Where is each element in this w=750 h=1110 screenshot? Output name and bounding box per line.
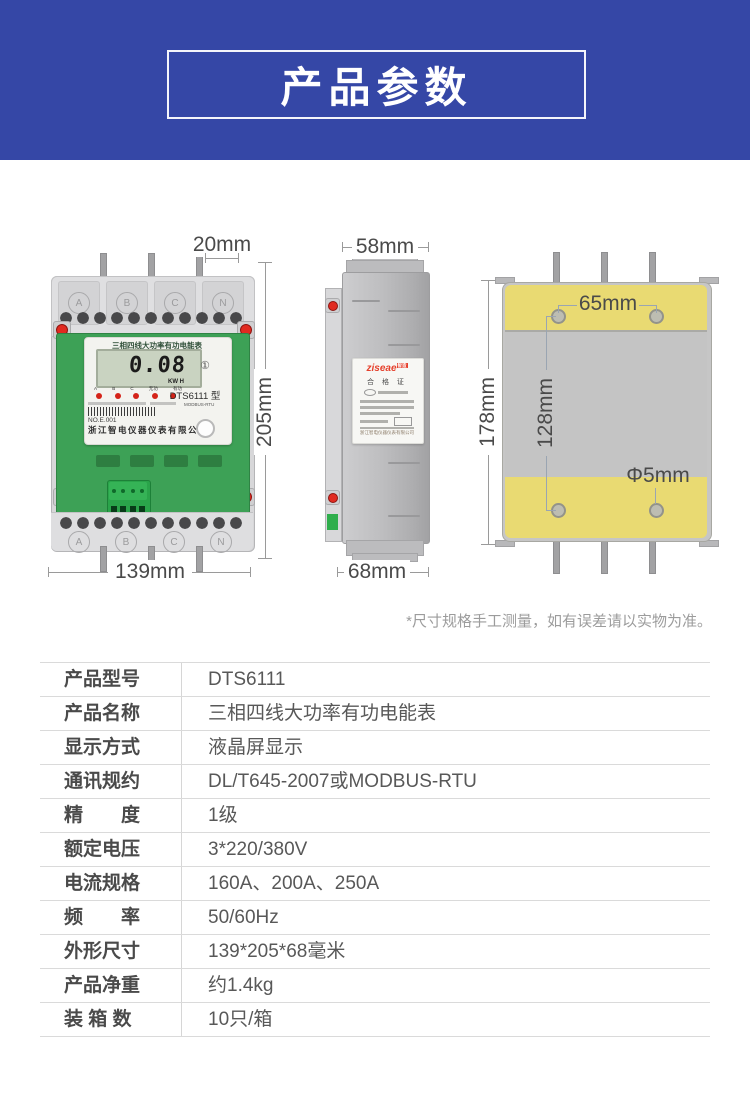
certificate-title: 合 格 证	[352, 377, 422, 387]
serial-number: NO.E.001	[88, 417, 117, 424]
dimension-label-178mm: 178mm	[477, 369, 499, 455]
dimension-label-205mm: 205mm	[254, 369, 276, 455]
terminal-block-screws	[109, 482, 147, 500]
spec-value: 3*220/380V	[181, 833, 710, 866]
spec-label: 电流规格	[40, 867, 181, 900]
pcb-slot	[130, 455, 154, 467]
model-number: DTS6111 型	[160, 388, 230, 402]
dimension-tick	[481, 280, 495, 281]
title-frame: 产品参数	[167, 50, 586, 119]
cert-text-line	[360, 420, 388, 423]
cert-stamp-icon	[364, 389, 376, 396]
dimension-tick	[342, 242, 343, 252]
spec-value: 50/60Hz	[181, 901, 710, 934]
pcb-slot	[198, 455, 222, 467]
cert-text-line	[378, 391, 408, 394]
dimension-label-58mm: 58mm	[352, 235, 418, 259]
spec-value: 160A、200A、250A	[181, 867, 710, 900]
table-row: 电流规格 160A、200A、250A	[40, 867, 710, 901]
dimension-tick	[238, 253, 239, 263]
led-indicator-icon	[152, 393, 158, 399]
header-banner: 产品参数	[0, 0, 750, 160]
table-row: 通讯规约 DL/T645-2007或MODBUS-RTU	[40, 765, 710, 799]
dimension-tick	[48, 567, 49, 577]
terminal-screws-row	[58, 312, 246, 325]
lcd-reading: 0.08	[128, 353, 187, 378]
led-indicator-icon	[133, 393, 139, 399]
dimension-label-65mm: 65mm	[577, 292, 639, 316]
spec-value: 1级	[181, 799, 710, 832]
lcd-unit: KW H	[168, 379, 184, 385]
spec-label: 通讯规约	[40, 765, 181, 798]
dimension-label-20mm: 20mm	[192, 233, 252, 257]
spec-value: 液晶屏显示	[181, 731, 710, 764]
table-row: 产品型号 DTS6111	[40, 663, 710, 697]
spec-value: 139*205*68毫米	[181, 935, 710, 968]
dimension-tick	[337, 567, 338, 577]
terminal-prong-icon	[196, 546, 203, 572]
product-parameters-page: 产品参数 A B C N 三相四线大功率有功电能表 0.08 KW H	[0, 0, 750, 1110]
manufacturer-name: 浙江智电仪器仪表有限公司	[88, 424, 208, 436]
dimension-tick	[428, 567, 429, 577]
cert-text-line	[360, 406, 414, 409]
protocol-text: MODBUS-RTU	[184, 402, 214, 407]
terminal-prong-icon	[601, 538, 608, 574]
table-row: 额定电压 3*220/380V	[40, 833, 710, 867]
spec-value: DTS6111	[181, 663, 710, 696]
terminal-prong-icon	[649, 538, 656, 574]
dimension-tick	[481, 544, 495, 545]
mounting-hole-icon	[649, 503, 664, 518]
led-label: C	[130, 386, 133, 392]
spec-value: 三相四线大功率有功电能表	[181, 697, 710, 730]
spec-value: DL/T645-2007或MODBUS-RTU	[181, 765, 710, 798]
dimension-label-68mm: 68mm	[344, 560, 410, 584]
terminal-chip	[327, 514, 338, 530]
led-indicator-icon	[96, 393, 102, 399]
led-label: B	[112, 386, 115, 392]
spec-table: 产品型号 DTS6111 产品名称 三相四线大功率有功电能表 显示方式 液晶屏显…	[40, 662, 710, 1037]
dimension-line	[205, 258, 238, 259]
table-row: 产品净重 约1.4kg	[40, 969, 710, 1003]
fine-print-line	[88, 402, 146, 405]
terminal-b-marker: B	[116, 292, 138, 314]
terminal-prong-icon	[100, 546, 107, 572]
table-row: 外形尺寸 139*205*68毫米	[40, 935, 710, 969]
brand-logo: ziseae智造	[352, 363, 422, 374]
terminal-c-marker: C	[163, 531, 185, 553]
pcb-slot	[164, 455, 188, 467]
spec-label: 产品净重	[40, 969, 181, 1002]
terminal-a-marker: A	[68, 531, 90, 553]
table-row: 产品名称 三相四线大功率有功电能表	[40, 697, 710, 731]
spec-label: 产品名称	[40, 697, 181, 730]
dimension-tick	[258, 558, 272, 559]
dimension-label-128mm: 128mm	[535, 370, 557, 456]
screw-icon	[325, 298, 340, 313]
spec-label: 额定电压	[40, 833, 181, 866]
dimension-tick	[428, 242, 429, 252]
meter-button-icon	[196, 419, 215, 438]
screw-icon	[325, 490, 340, 505]
terminal-prong-icon	[553, 538, 560, 574]
cert-text-line	[360, 412, 400, 415]
dimension-label-hole-diameter: Φ5mm	[620, 464, 696, 488]
terminal-n-marker: N	[210, 531, 232, 553]
housing-groove	[388, 515, 420, 517]
cert-text-line	[360, 400, 414, 403]
housing-groove	[352, 300, 380, 302]
spec-label: 外形尺寸	[40, 935, 181, 968]
terminal-b-marker: B	[115, 531, 137, 553]
lcd-display: 0.08 KW H	[96, 349, 202, 388]
terminal-screws-row	[58, 517, 246, 530]
measurement-disclaimer: *尺寸规格手工测量，如有误差请以实物为准。	[0, 610, 712, 631]
table-row: 频 率 50/60Hz	[40, 901, 710, 935]
cert-checkbox	[394, 417, 412, 426]
housing-groove	[388, 344, 420, 346]
table-row: 显示方式 液晶屏显示	[40, 731, 710, 765]
dimension-tick	[546, 316, 556, 317]
dimension-label-139mm: 139mm	[108, 560, 192, 584]
terminal-n-marker: N	[212, 292, 234, 314]
dimension-leader	[655, 488, 656, 504]
led-label: A	[94, 386, 97, 392]
lcd-badge: ①	[200, 359, 210, 372]
led-indicator-icon	[115, 393, 121, 399]
led-label: 无功	[149, 386, 158, 392]
dimension-tick	[558, 305, 559, 313]
spec-label: 装 箱 数	[40, 1003, 181, 1036]
cert-company: 浙江智电仪器仪表有限公司	[354, 430, 420, 436]
terminal-a-marker: A	[68, 292, 90, 314]
spec-value: 10只/箱	[181, 1003, 710, 1036]
cert-text-line	[360, 427, 414, 429]
dimension-tick	[546, 510, 556, 511]
dimension-tick	[656, 305, 657, 313]
page-title: 产品参数	[280, 54, 472, 115]
dimension-tick	[250, 567, 251, 577]
fine-print-line	[150, 402, 176, 405]
barcode-icon	[88, 407, 156, 416]
spec-label: 频 率	[40, 901, 181, 934]
dimension-tick	[205, 253, 206, 263]
spec-label: 产品型号	[40, 663, 181, 696]
dimension-tick	[258, 262, 272, 263]
housing-groove	[388, 310, 420, 312]
terminal-c-marker: C	[164, 292, 186, 314]
pcb-slot	[96, 455, 120, 467]
spec-label: 精 度	[40, 799, 181, 832]
housing-groove	[388, 462, 420, 464]
spec-value: 约1.4kg	[181, 969, 710, 1002]
table-row: 装 箱 数 10只/箱	[40, 1003, 710, 1037]
spec-label: 显示方式	[40, 731, 181, 764]
table-row: 精 度 1级	[40, 799, 710, 833]
